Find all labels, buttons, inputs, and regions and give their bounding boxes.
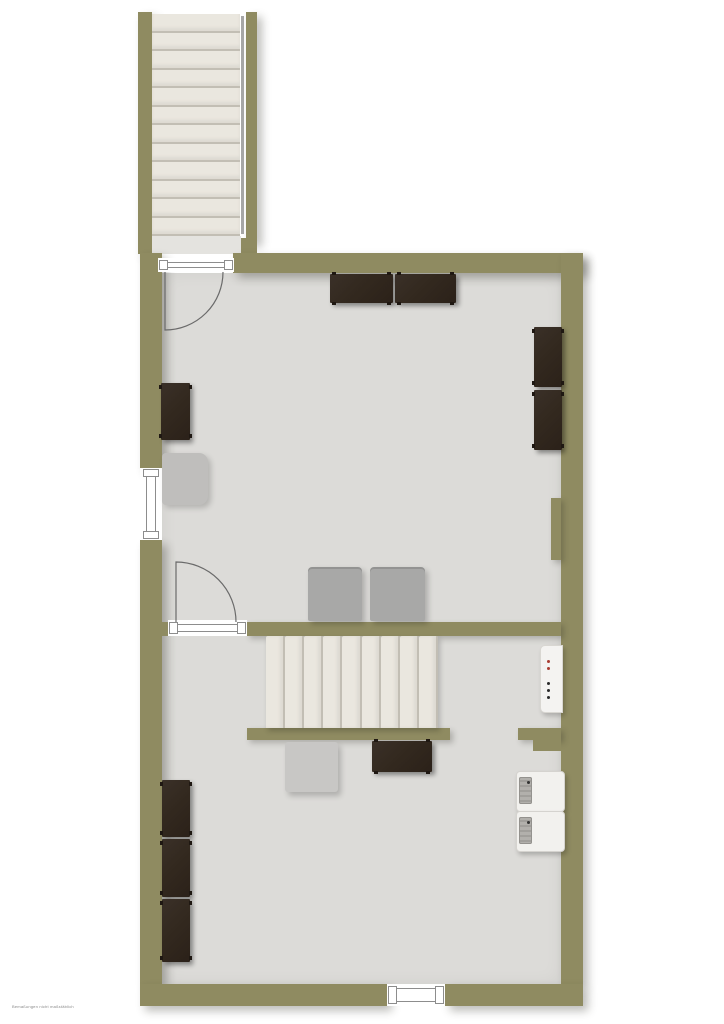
black-indicator-dot xyxy=(547,682,550,685)
wall-top xyxy=(233,253,583,273)
interior-door-swing xyxy=(170,556,242,624)
floor-plan: Bemaßungen nicht maßstäblich xyxy=(0,0,724,1024)
wall-protrusion-step xyxy=(533,740,561,751)
stair-tread xyxy=(381,636,400,728)
interior-staircase-treads xyxy=(266,636,438,728)
window-bottom xyxy=(387,984,445,1006)
door-pane xyxy=(176,624,239,632)
radiator-left-lower-3 xyxy=(162,899,190,962)
sideboard-2 xyxy=(395,274,456,303)
window-pane xyxy=(395,988,437,1002)
stair-tread xyxy=(285,636,304,728)
boiler-black-indicators xyxy=(547,680,550,701)
window-pane xyxy=(146,476,156,532)
boiler xyxy=(540,645,563,713)
stair-tread xyxy=(323,636,342,728)
black-indicator-dot xyxy=(547,689,550,692)
stair-tread xyxy=(152,70,240,89)
wall-right xyxy=(561,253,583,984)
door-hinge-block xyxy=(224,260,233,270)
window-block xyxy=(435,986,444,1004)
table xyxy=(285,742,338,792)
stair-tread xyxy=(152,144,240,163)
stair-tread xyxy=(152,162,240,181)
desk xyxy=(372,741,432,772)
stair-tread xyxy=(419,636,438,728)
washer-1 xyxy=(516,771,565,812)
stair-tread xyxy=(152,33,240,52)
radiator-left-lower-1 xyxy=(162,780,190,837)
stair-tread xyxy=(152,181,240,200)
stair-tread xyxy=(152,51,240,70)
window-block xyxy=(143,469,159,477)
red-indicator-dot xyxy=(547,667,550,670)
wall-bottom-right xyxy=(445,984,583,1006)
wall-pillar-right xyxy=(551,498,561,560)
window-left xyxy=(140,468,162,540)
red-indicator-dot xyxy=(547,660,550,663)
entrance-door-swing xyxy=(160,270,230,334)
radiator-left-lower-2 xyxy=(162,839,190,897)
washer-2 xyxy=(516,811,565,852)
stair-tread xyxy=(152,125,240,144)
radiator-left-upper xyxy=(161,383,190,440)
appliance-gray-2 xyxy=(370,567,425,621)
wall-protrusion xyxy=(518,728,561,740)
door-hinge-block xyxy=(159,260,168,270)
stair-handrail xyxy=(241,16,244,234)
armchair xyxy=(162,453,208,505)
stair-tread xyxy=(362,636,381,728)
stair-tread xyxy=(152,218,240,237)
window-block xyxy=(143,531,159,539)
exterior-stair-landing xyxy=(152,236,241,254)
radiator-right-1 xyxy=(534,327,562,387)
exterior-stair-wall-left xyxy=(138,12,152,254)
black-indicator-dot xyxy=(547,696,550,699)
exterior-staircase-treads xyxy=(152,14,240,236)
stair-tread xyxy=(152,199,240,218)
appliance-gray-1 xyxy=(308,567,362,621)
radiator-right-2 xyxy=(534,390,562,450)
stair-tread xyxy=(304,636,323,728)
wall-bottom-left xyxy=(140,984,387,1006)
stair-tread xyxy=(152,88,240,107)
wall-top-stub xyxy=(140,253,159,273)
window-block xyxy=(388,986,397,1004)
stair-tread xyxy=(152,14,240,33)
stair-tread xyxy=(266,636,285,728)
stair-tread xyxy=(152,107,240,126)
sideboard-1 xyxy=(330,274,393,303)
caption: Bemaßungen nicht maßstäblich xyxy=(12,1004,74,1009)
interior-wall xyxy=(247,622,561,636)
exterior-stair-wall-right xyxy=(246,12,257,242)
door-pane xyxy=(166,262,226,268)
stair-tread xyxy=(342,636,361,728)
boiler-red-indicators xyxy=(547,658,550,672)
stair-tread xyxy=(400,636,419,728)
wall-left-lower xyxy=(140,540,162,984)
